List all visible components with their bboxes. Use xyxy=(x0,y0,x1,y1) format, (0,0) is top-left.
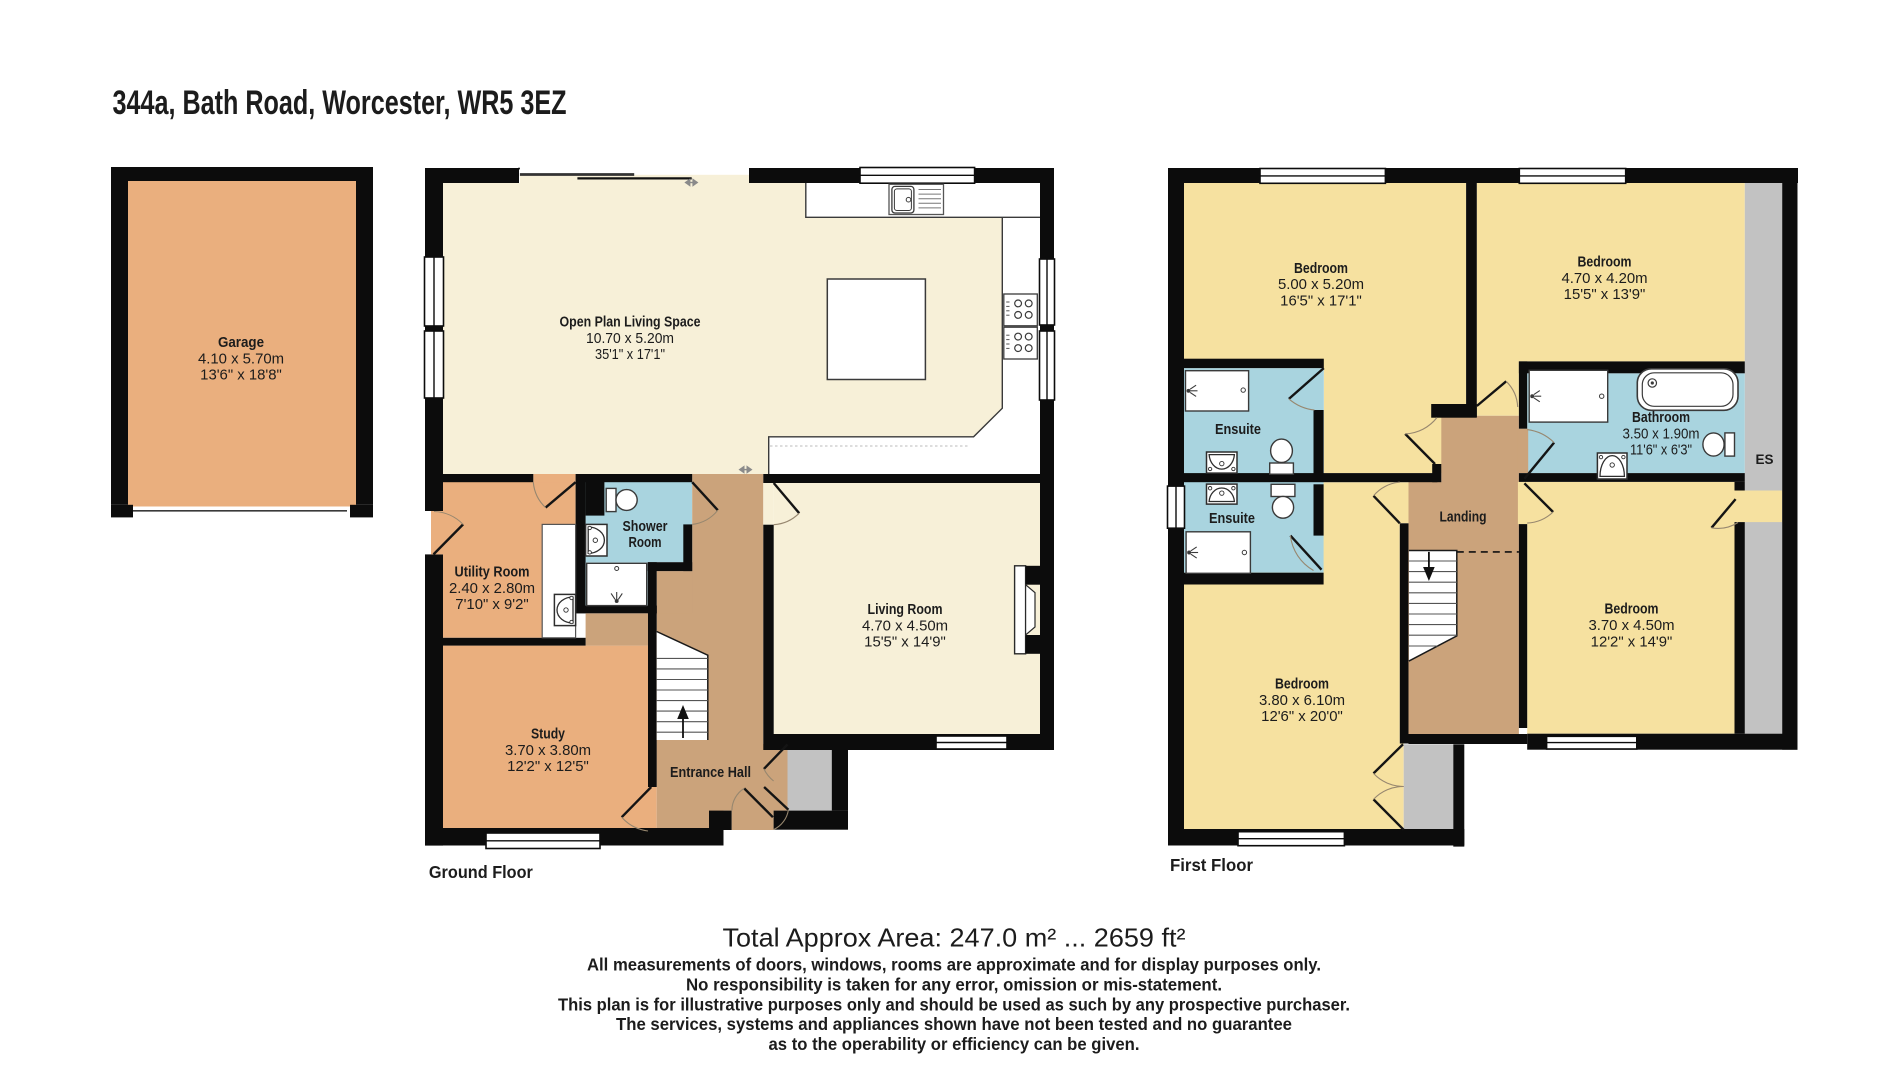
svg-text:3.70 x 3.80m: 3.70 x 3.80m xyxy=(505,743,591,759)
svg-text:16'5" x 17'1": 16'5" x 17'1" xyxy=(1280,293,1362,309)
svg-text:Open Plan Living Space: Open Plan Living Space xyxy=(560,314,701,331)
svg-text:Entrance Hall: Entrance Hall xyxy=(670,764,751,781)
svg-text:Landing: Landing xyxy=(1440,508,1487,525)
svg-text:35'1" x 17'1": 35'1" x 17'1" xyxy=(595,347,665,363)
svg-text:No responsibility is taken for: No responsibility is taken for any error… xyxy=(686,974,1222,994)
svg-text:Ground Floor: Ground Floor xyxy=(429,862,533,882)
svg-text:Ensuite: Ensuite xyxy=(1215,421,1261,438)
svg-text:3.80 x 6.10m: 3.80 x 6.10m xyxy=(1259,693,1345,709)
svg-text:Ensuite: Ensuite xyxy=(1209,510,1255,527)
svg-text:Study: Study xyxy=(531,726,565,743)
svg-text:4.10 x 5.70m: 4.10 x 5.70m xyxy=(198,351,284,367)
svg-text:5.00 x 5.20m: 5.00 x 5.20m xyxy=(1278,277,1364,293)
svg-text:7'10" x 9'2": 7'10" x 9'2" xyxy=(455,597,528,613)
svg-text:344a, Bath Road, Worcester, WR: 344a, Bath Road, Worcester, WR5 3EZ xyxy=(113,84,567,122)
svg-text:Utility Room: Utility Room xyxy=(455,564,530,581)
svg-text:ES: ES xyxy=(1755,452,1773,467)
svg-text:Bedroom: Bedroom xyxy=(1605,601,1659,618)
svg-text:4.70 x 4.20m: 4.70 x 4.20m xyxy=(1561,271,1647,287)
svg-text:11'6" x 6'3": 11'6" x 6'3" xyxy=(1630,443,1692,459)
svg-text:All measurements of doors, win: All measurements of doors, windows, room… xyxy=(587,954,1321,974)
svg-text:Room: Room xyxy=(629,534,662,551)
svg-text:4.70 x 4.50m: 4.70 x 4.50m xyxy=(862,618,948,634)
svg-text:Garage: Garage xyxy=(218,334,264,351)
svg-text:12'2" x 14'9": 12'2" x 14'9" xyxy=(1591,634,1673,650)
svg-text:10.70 x 5.20m: 10.70 x 5.20m xyxy=(586,331,674,347)
svg-text:Bedroom: Bedroom xyxy=(1578,254,1632,271)
svg-text:Bathroom: Bathroom xyxy=(1632,409,1690,426)
svg-text:2.40 x 2.80m: 2.40 x 2.80m xyxy=(449,581,535,597)
svg-text:Living Room: Living Room xyxy=(868,601,943,618)
svg-text:3.50 x 1.90m: 3.50 x 1.90m xyxy=(1623,426,1700,442)
svg-text:15'5" x 13'9": 15'5" x 13'9" xyxy=(1564,287,1646,303)
svg-text:This plan is for illustrative: This plan is for illustrative purposes o… xyxy=(558,995,1350,1015)
svg-text:12'6" x 20'0": 12'6" x 20'0" xyxy=(1261,709,1343,725)
svg-text:15'5" x 14'9": 15'5" x 14'9" xyxy=(864,635,946,651)
svg-text:Shower: Shower xyxy=(623,518,668,535)
svg-text:as to the operability or effic: as to the operability or efficiency can … xyxy=(769,1034,1140,1054)
svg-text:First Floor: First Floor xyxy=(1170,855,1253,875)
svg-text:3.70 x 4.50m: 3.70 x 4.50m xyxy=(1588,618,1674,634)
svg-text:The services, systems and appl: The services, systems and appliances sho… xyxy=(616,1014,1292,1034)
svg-text:Total Approx Area: 247.0 m² ..: Total Approx Area: 247.0 m² ... 2659 ft² xyxy=(723,923,1186,953)
svg-text:13'6" x 18'8": 13'6" x 18'8" xyxy=(200,368,282,384)
svg-text:12'2" x 12'5": 12'2" x 12'5" xyxy=(507,759,589,775)
svg-text:Bedroom: Bedroom xyxy=(1294,260,1348,277)
svg-text:Bedroom: Bedroom xyxy=(1275,676,1329,693)
